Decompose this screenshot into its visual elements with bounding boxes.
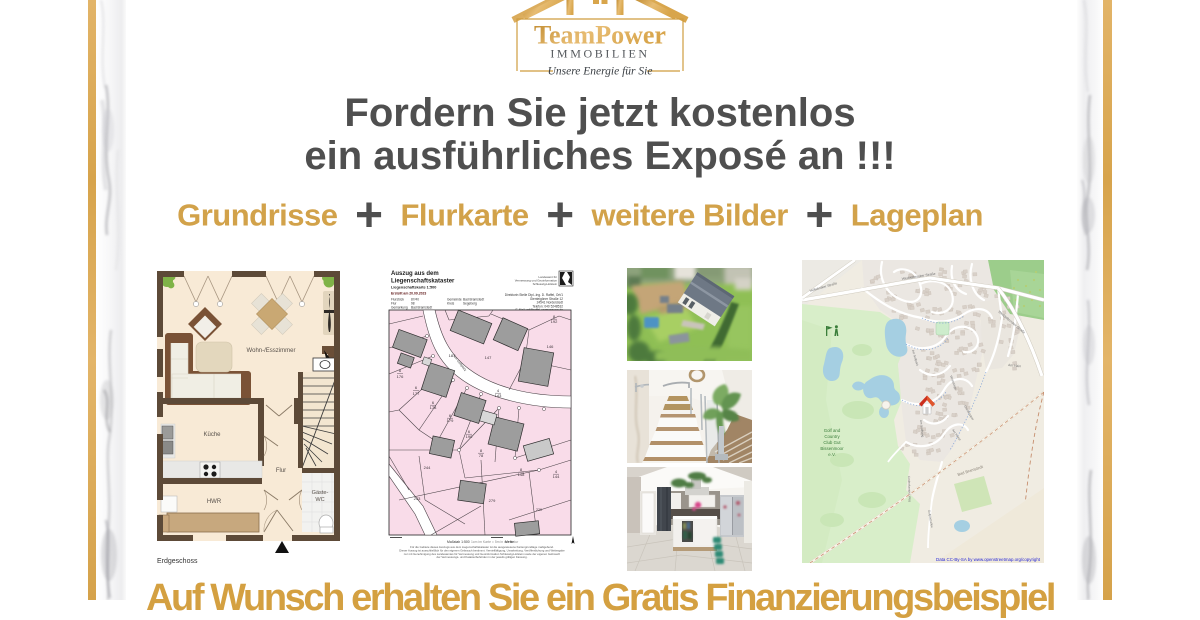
svg-text:Liegenschaftskataster: Liegenschaftskataster bbox=[391, 279, 455, 285]
svg-text:HWR: HWR bbox=[207, 499, 222, 505]
svg-text:244: 244 bbox=[424, 465, 431, 470]
svg-text:der Vermessungs- und Katasterb: der Vermessungs- und Katasterbehörden in… bbox=[437, 555, 528, 559]
svg-text:Club Gut: Club Gut bbox=[823, 440, 841, 445]
svg-text:187: 187 bbox=[449, 353, 456, 358]
svg-text:Data CC-By-SA by www.openstree: Data CC-By-SA by www.openstreetmap.org/c… bbox=[936, 557, 1041, 562]
svg-text:Schleswig-Holstein: Schleswig-Holstein bbox=[533, 282, 558, 286]
svg-text:Küche: Küche bbox=[203, 432, 221, 438]
svg-text:146: 146 bbox=[547, 344, 554, 349]
svg-text:Flur: Flur bbox=[276, 468, 286, 474]
svg-text:Bissenmoor: Bissenmoor bbox=[820, 446, 844, 451]
svg-text:Gemarkung: Gemarkung bbox=[391, 306, 408, 310]
svg-text:190: 190 bbox=[466, 434, 473, 439]
svg-text:Country: Country bbox=[824, 434, 840, 439]
svg-text:Maßstab 1:500: Maßstab 1:500 bbox=[447, 540, 470, 544]
svg-text:Unsere Energie für Sie: Unsere Energie für Sie bbox=[548, 66, 653, 78]
svg-text:143: 143 bbox=[495, 393, 502, 398]
svg-text:Liegenschaftskarte 1:500: Liegenschaftskarte 1:500 bbox=[391, 286, 436, 290]
svg-text:78: 78 bbox=[479, 453, 484, 458]
svg-text:Gäste-: Gäste- bbox=[312, 490, 329, 496]
svg-text:TeamPower: TeamPower bbox=[534, 21, 666, 50]
svg-text:176: 176 bbox=[397, 374, 404, 379]
svg-text:Golf and: Golf and bbox=[824, 428, 841, 433]
svg-text:147: 147 bbox=[485, 355, 492, 360]
svg-text:220: 220 bbox=[536, 508, 542, 512]
svg-text:144: 144 bbox=[553, 474, 560, 479]
svg-text:192: 192 bbox=[551, 319, 558, 324]
svg-text:Auszug aus dem: Auszug aus dem bbox=[391, 271, 439, 277]
svg-text:Kreis: Kreis bbox=[447, 302, 455, 306]
svg-text:Wohn-/Esszimmer: Wohn-/Esszimmer bbox=[247, 348, 296, 354]
svg-text:148: 148 bbox=[518, 472, 525, 477]
svg-text:Segeberg: Segeberg bbox=[463, 302, 477, 306]
svg-text:179: 179 bbox=[447, 418, 454, 423]
svg-text:IMMOBILIEN: IMMOBILIEN bbox=[550, 47, 649, 61]
svg-text:e.V.: e.V. bbox=[828, 452, 835, 457]
svg-text:Bad Bramstedt: Bad Bramstedt bbox=[411, 306, 432, 310]
svg-text:233: 233 bbox=[414, 496, 421, 501]
svg-text:WC: WC bbox=[315, 497, 324, 503]
svg-text:177: 177 bbox=[413, 391, 420, 396]
svg-text:178: 178 bbox=[430, 405, 437, 410]
svg-text:Erstellt am 20.09.2023: Erstellt am 20.09.2023 bbox=[391, 292, 426, 296]
svg-text:Meter: Meter bbox=[505, 540, 515, 544]
svg-text:279: 279 bbox=[489, 498, 496, 503]
